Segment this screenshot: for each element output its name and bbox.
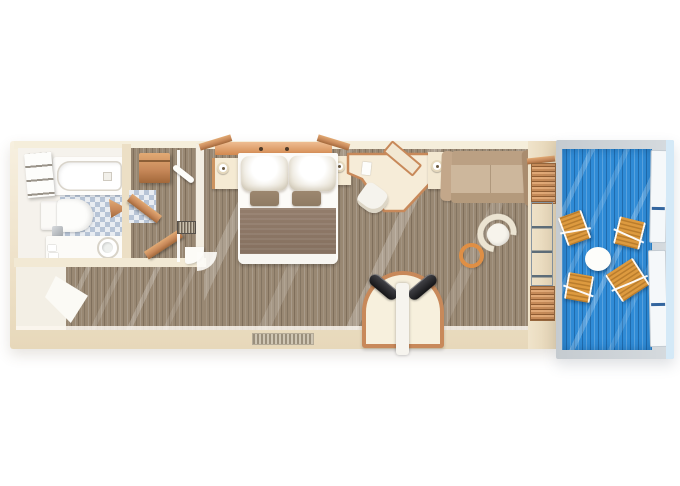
bedspread: [240, 208, 336, 254]
toiletry-item: [48, 245, 56, 251]
balcony-round-table: [585, 247, 611, 271]
arch-divider: [396, 283, 409, 355]
deck-chair-3: [564, 272, 594, 303]
baseboard-trim: [16, 326, 532, 330]
ring-table: [459, 243, 484, 268]
lamp-left: [217, 162, 229, 174]
sofa-back: [452, 151, 526, 166]
vent-grille: [252, 333, 314, 345]
wardrobe-wall: [196, 144, 204, 264]
desk-card: [361, 162, 371, 176]
louver-screen-top: [531, 163, 556, 204]
bathtub: [53, 157, 126, 195]
floor-plan-canvas: [0, 0, 680, 486]
drain-grate: [177, 221, 196, 234]
glass-balcony-door: [531, 202, 553, 286]
accent-pillow-left: [250, 191, 279, 206]
louver-screen-bottom: [530, 286, 555, 321]
wall-cabinet: [139, 153, 170, 183]
sofa-seat: [451, 165, 528, 196]
pillow-right: [289, 156, 337, 192]
arch-loveseat: [362, 271, 444, 348]
railing-panel-bottom: [648, 250, 668, 347]
bed-sheet-foot: [240, 254, 336, 264]
sofa-front-edge: [451, 193, 528, 203]
railing-outer-edge: [666, 140, 674, 359]
accent-pillow-right: [292, 191, 321, 206]
bathroom-shelf-unit: [24, 152, 55, 198]
pillow-left: [241, 156, 289, 192]
sink: [97, 237, 119, 259]
